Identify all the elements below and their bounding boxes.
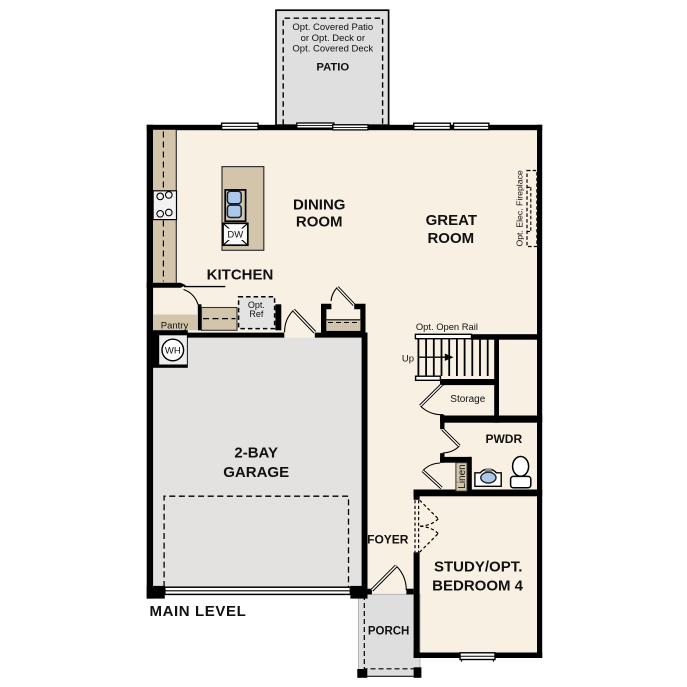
svg-text:FOYER: FOYER xyxy=(367,533,409,547)
svg-text:PORCH: PORCH xyxy=(368,626,410,638)
svg-text:PWDR: PWDR xyxy=(485,432,522,446)
svg-text:Opt. Covered Patio: Opt. Covered Patio xyxy=(292,22,373,33)
svg-text:KITCHEN: KITCHEN xyxy=(207,267,274,284)
svg-text:Pantry: Pantry xyxy=(161,320,189,331)
svg-text:or Opt. Deck or: or Opt. Deck or xyxy=(301,33,365,44)
svg-text:PATIO: PATIO xyxy=(316,61,349,73)
svg-text:ROOM: ROOM xyxy=(296,214,343,231)
svg-text:DW: DW xyxy=(227,230,243,241)
svg-text:Up: Up xyxy=(402,353,414,364)
svg-text:MAIN LEVEL: MAIN LEVEL xyxy=(150,603,247,620)
svg-text:DINING: DINING xyxy=(293,197,346,214)
svg-text:BEDROOM 4: BEDROOM 4 xyxy=(432,577,524,594)
svg-text:ROOM: ROOM xyxy=(427,230,474,247)
svg-text:GARAGE: GARAGE xyxy=(223,464,289,481)
svg-text:WH: WH xyxy=(165,345,181,356)
svg-text:Ref: Ref xyxy=(249,309,264,319)
svg-text:Opt. Covered Deck: Opt. Covered Deck xyxy=(292,44,373,55)
svg-text:Opt. Elec. Fireplace: Opt. Elec. Fireplace xyxy=(514,170,524,246)
svg-text:STUDY/OPT.: STUDY/OPT. xyxy=(434,558,522,575)
svg-text:Linen: Linen xyxy=(457,464,468,488)
svg-text:Storage: Storage xyxy=(450,394,485,405)
svg-text:Opt. Open Rail: Opt. Open Rail xyxy=(416,321,478,332)
svg-text:GREAT: GREAT xyxy=(426,212,477,229)
svg-text:2-BAY: 2-BAY xyxy=(234,445,278,462)
